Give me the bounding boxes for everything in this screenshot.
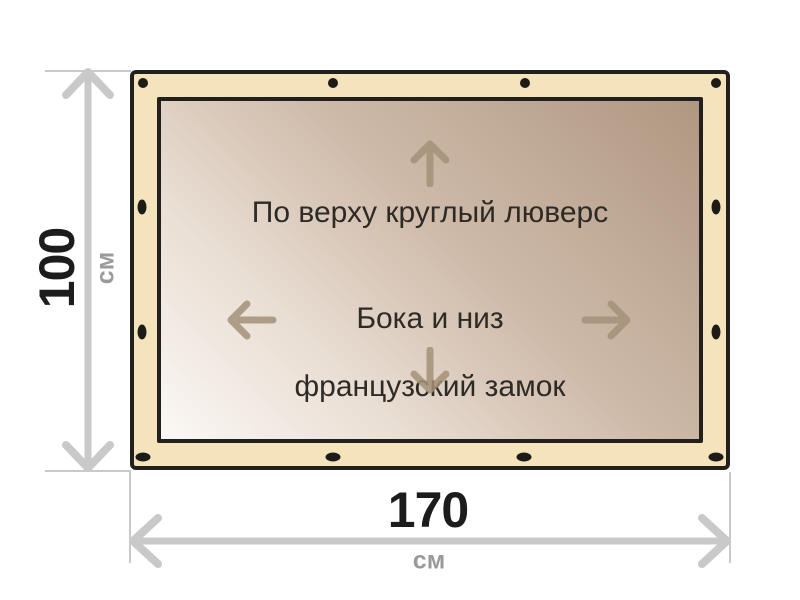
grommet-dot-icon xyxy=(328,78,338,88)
height-value: 100 xyxy=(28,228,86,308)
tarp-frame: По верху круглый люверс Бока и низ франц… xyxy=(130,70,730,470)
width-value: 170 xyxy=(388,481,468,539)
arrow-down-icon xyxy=(410,347,450,395)
height-unit: см xyxy=(92,252,121,284)
grommet-dot-icon xyxy=(711,78,721,88)
sides-bottom-annotation-line1: Бока и низ xyxy=(356,302,503,335)
grommet-dot-icon xyxy=(136,453,151,462)
grommet-dot-icon xyxy=(138,78,148,88)
grommet-dot-icon xyxy=(517,453,532,462)
arrow-right-icon xyxy=(580,300,632,340)
diagram-canvas: По верху круглый люверс Бока и низ франц… xyxy=(0,0,800,600)
grommet-dot-icon xyxy=(712,200,721,215)
grommet-dot-icon xyxy=(138,200,147,215)
top-edge-annotation: По верху круглый люверс xyxy=(161,196,699,230)
grommet-dot-icon xyxy=(712,325,721,340)
grommet-dot-icon xyxy=(326,453,341,462)
arrow-up-icon xyxy=(410,139,450,187)
width-unit: см xyxy=(413,547,445,576)
grommet-dot-icon xyxy=(709,453,724,462)
tarp-canvas: По верху круглый люверс Бока и низ франц… xyxy=(157,97,703,443)
grommet-dot-icon xyxy=(520,78,530,88)
arrow-left-icon xyxy=(226,300,278,340)
grommet-dot-icon xyxy=(138,325,147,340)
